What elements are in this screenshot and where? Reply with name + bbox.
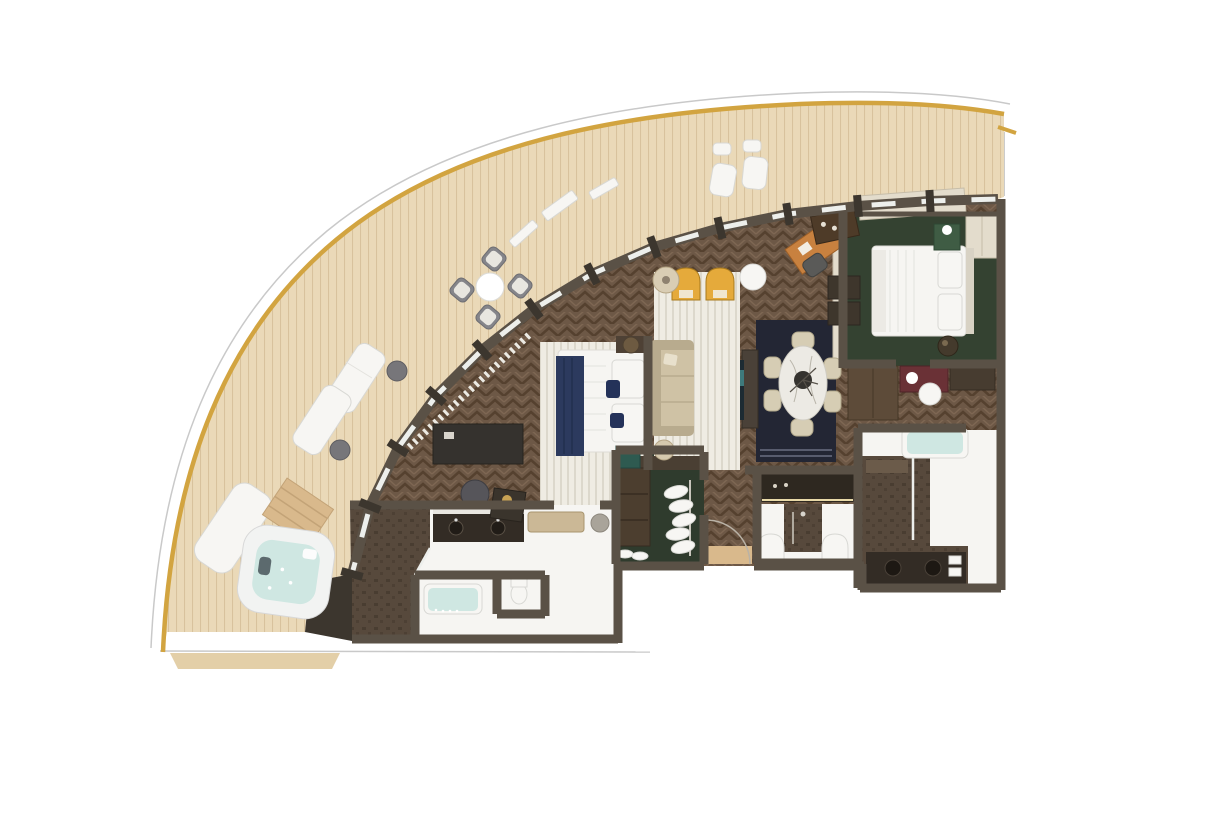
pillow <box>938 252 962 288</box>
headboard <box>966 248 974 334</box>
deck-bottom-line <box>160 651 650 652</box>
side-table <box>330 440 350 460</box>
console-body <box>742 350 758 428</box>
arched-door <box>758 534 784 562</box>
cabinet <box>950 366 995 390</box>
tv-glint <box>740 370 744 386</box>
side-table-round <box>740 264 766 290</box>
plant-flower <box>942 225 952 235</box>
dining-chair <box>791 419 813 436</box>
guest-bathroom <box>758 474 856 564</box>
bottle <box>773 484 777 488</box>
shoes <box>632 552 648 560</box>
tv-screen <box>740 360 744 420</box>
dining-chair <box>824 391 841 412</box>
accent-pillow <box>606 380 620 398</box>
sink <box>885 560 901 576</box>
whirlpool-tub <box>234 522 337 622</box>
sofa <box>650 340 694 436</box>
towels <box>949 556 961 564</box>
bathtub-water <box>428 588 478 611</box>
towels <box>949 568 961 576</box>
door-mat <box>706 546 752 564</box>
side-table <box>387 361 407 381</box>
lamp-highlight <box>942 340 948 346</box>
pillow <box>938 294 962 330</box>
dining-chair <box>764 390 781 411</box>
bench <box>528 512 584 532</box>
tv-console <box>740 350 758 428</box>
pouf <box>591 514 609 532</box>
shower-column <box>784 504 822 552</box>
ottoman <box>713 143 731 155</box>
deck-apron <box>170 653 340 669</box>
nightstand-lamp <box>938 336 958 356</box>
floor-lamp-top <box>662 276 670 284</box>
ottoman <box>743 140 761 152</box>
throw-pillow <box>663 353 678 366</box>
lounge-chair <box>741 156 768 190</box>
bottle <box>784 483 788 487</box>
faucet <box>454 518 457 521</box>
round-dining-table <box>476 273 504 301</box>
arched-door <box>822 534 848 562</box>
console-item <box>444 432 454 439</box>
toilet-tank <box>511 579 527 587</box>
sink <box>925 560 941 576</box>
shower-head <box>801 512 806 517</box>
armchair-seat <box>679 290 693 298</box>
sink <box>449 521 463 535</box>
bathtub-water <box>907 432 963 454</box>
flowers <box>906 372 918 384</box>
sink <box>491 521 505 535</box>
blanket-fold <box>872 250 886 332</box>
stool <box>919 383 941 405</box>
lit-console <box>760 474 855 502</box>
second-bathroom <box>860 428 999 588</box>
media-console <box>433 424 523 464</box>
accent-pillow <box>610 413 624 428</box>
navy-throw <box>556 356 584 456</box>
floor-plan-canvas <box>0 0 1221 814</box>
lounge-chair <box>708 162 737 198</box>
sphere-lamp <box>623 337 639 353</box>
floor-plan-page: { "scene": { "type": "floor-plan", "subj… <box>0 0 1221 814</box>
dining-chair <box>764 357 781 378</box>
whirlpool-pillow <box>302 548 317 560</box>
armchair-seat <box>713 290 727 298</box>
shower-bench <box>866 460 908 473</box>
